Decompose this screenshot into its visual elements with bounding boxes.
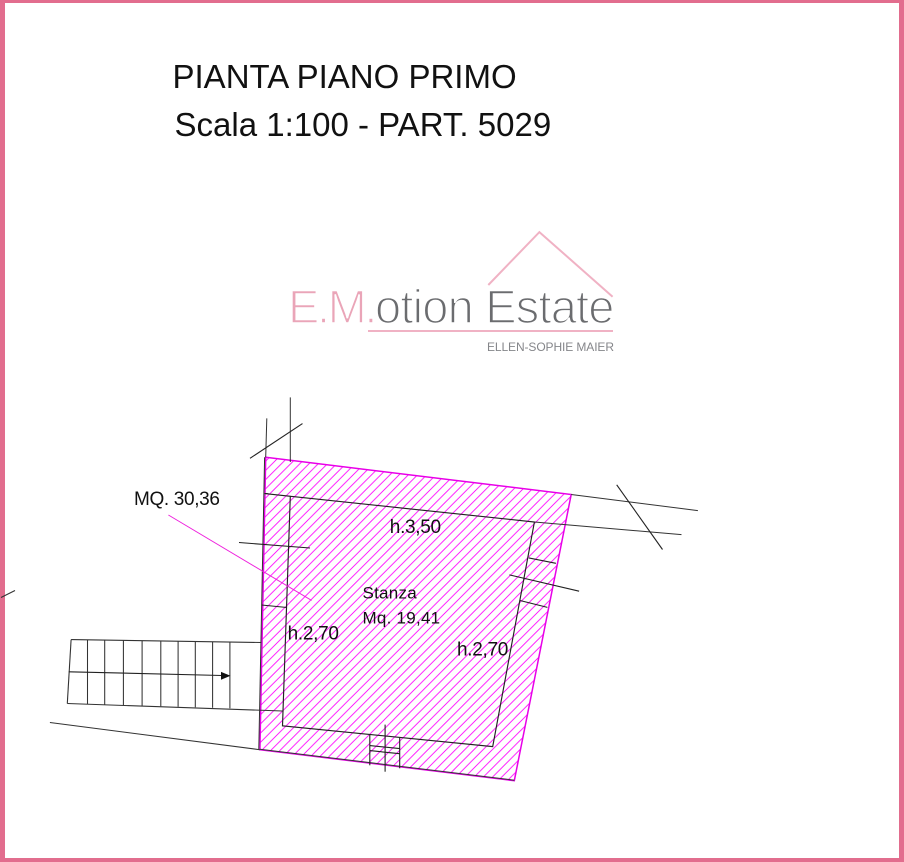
svg-text:Mq. 19,41: Mq. 19,41 — [363, 609, 441, 628]
svg-text:Stanza: Stanza — [363, 583, 418, 602]
svg-text:h.3,50: h.3,50 — [390, 517, 441, 538]
svg-text:h.2,70: h.2,70 — [457, 640, 508, 661]
svg-text:h.2,70: h.2,70 — [288, 623, 339, 644]
svg-text:MQ. 30,36: MQ. 30,36 — [134, 489, 220, 510]
